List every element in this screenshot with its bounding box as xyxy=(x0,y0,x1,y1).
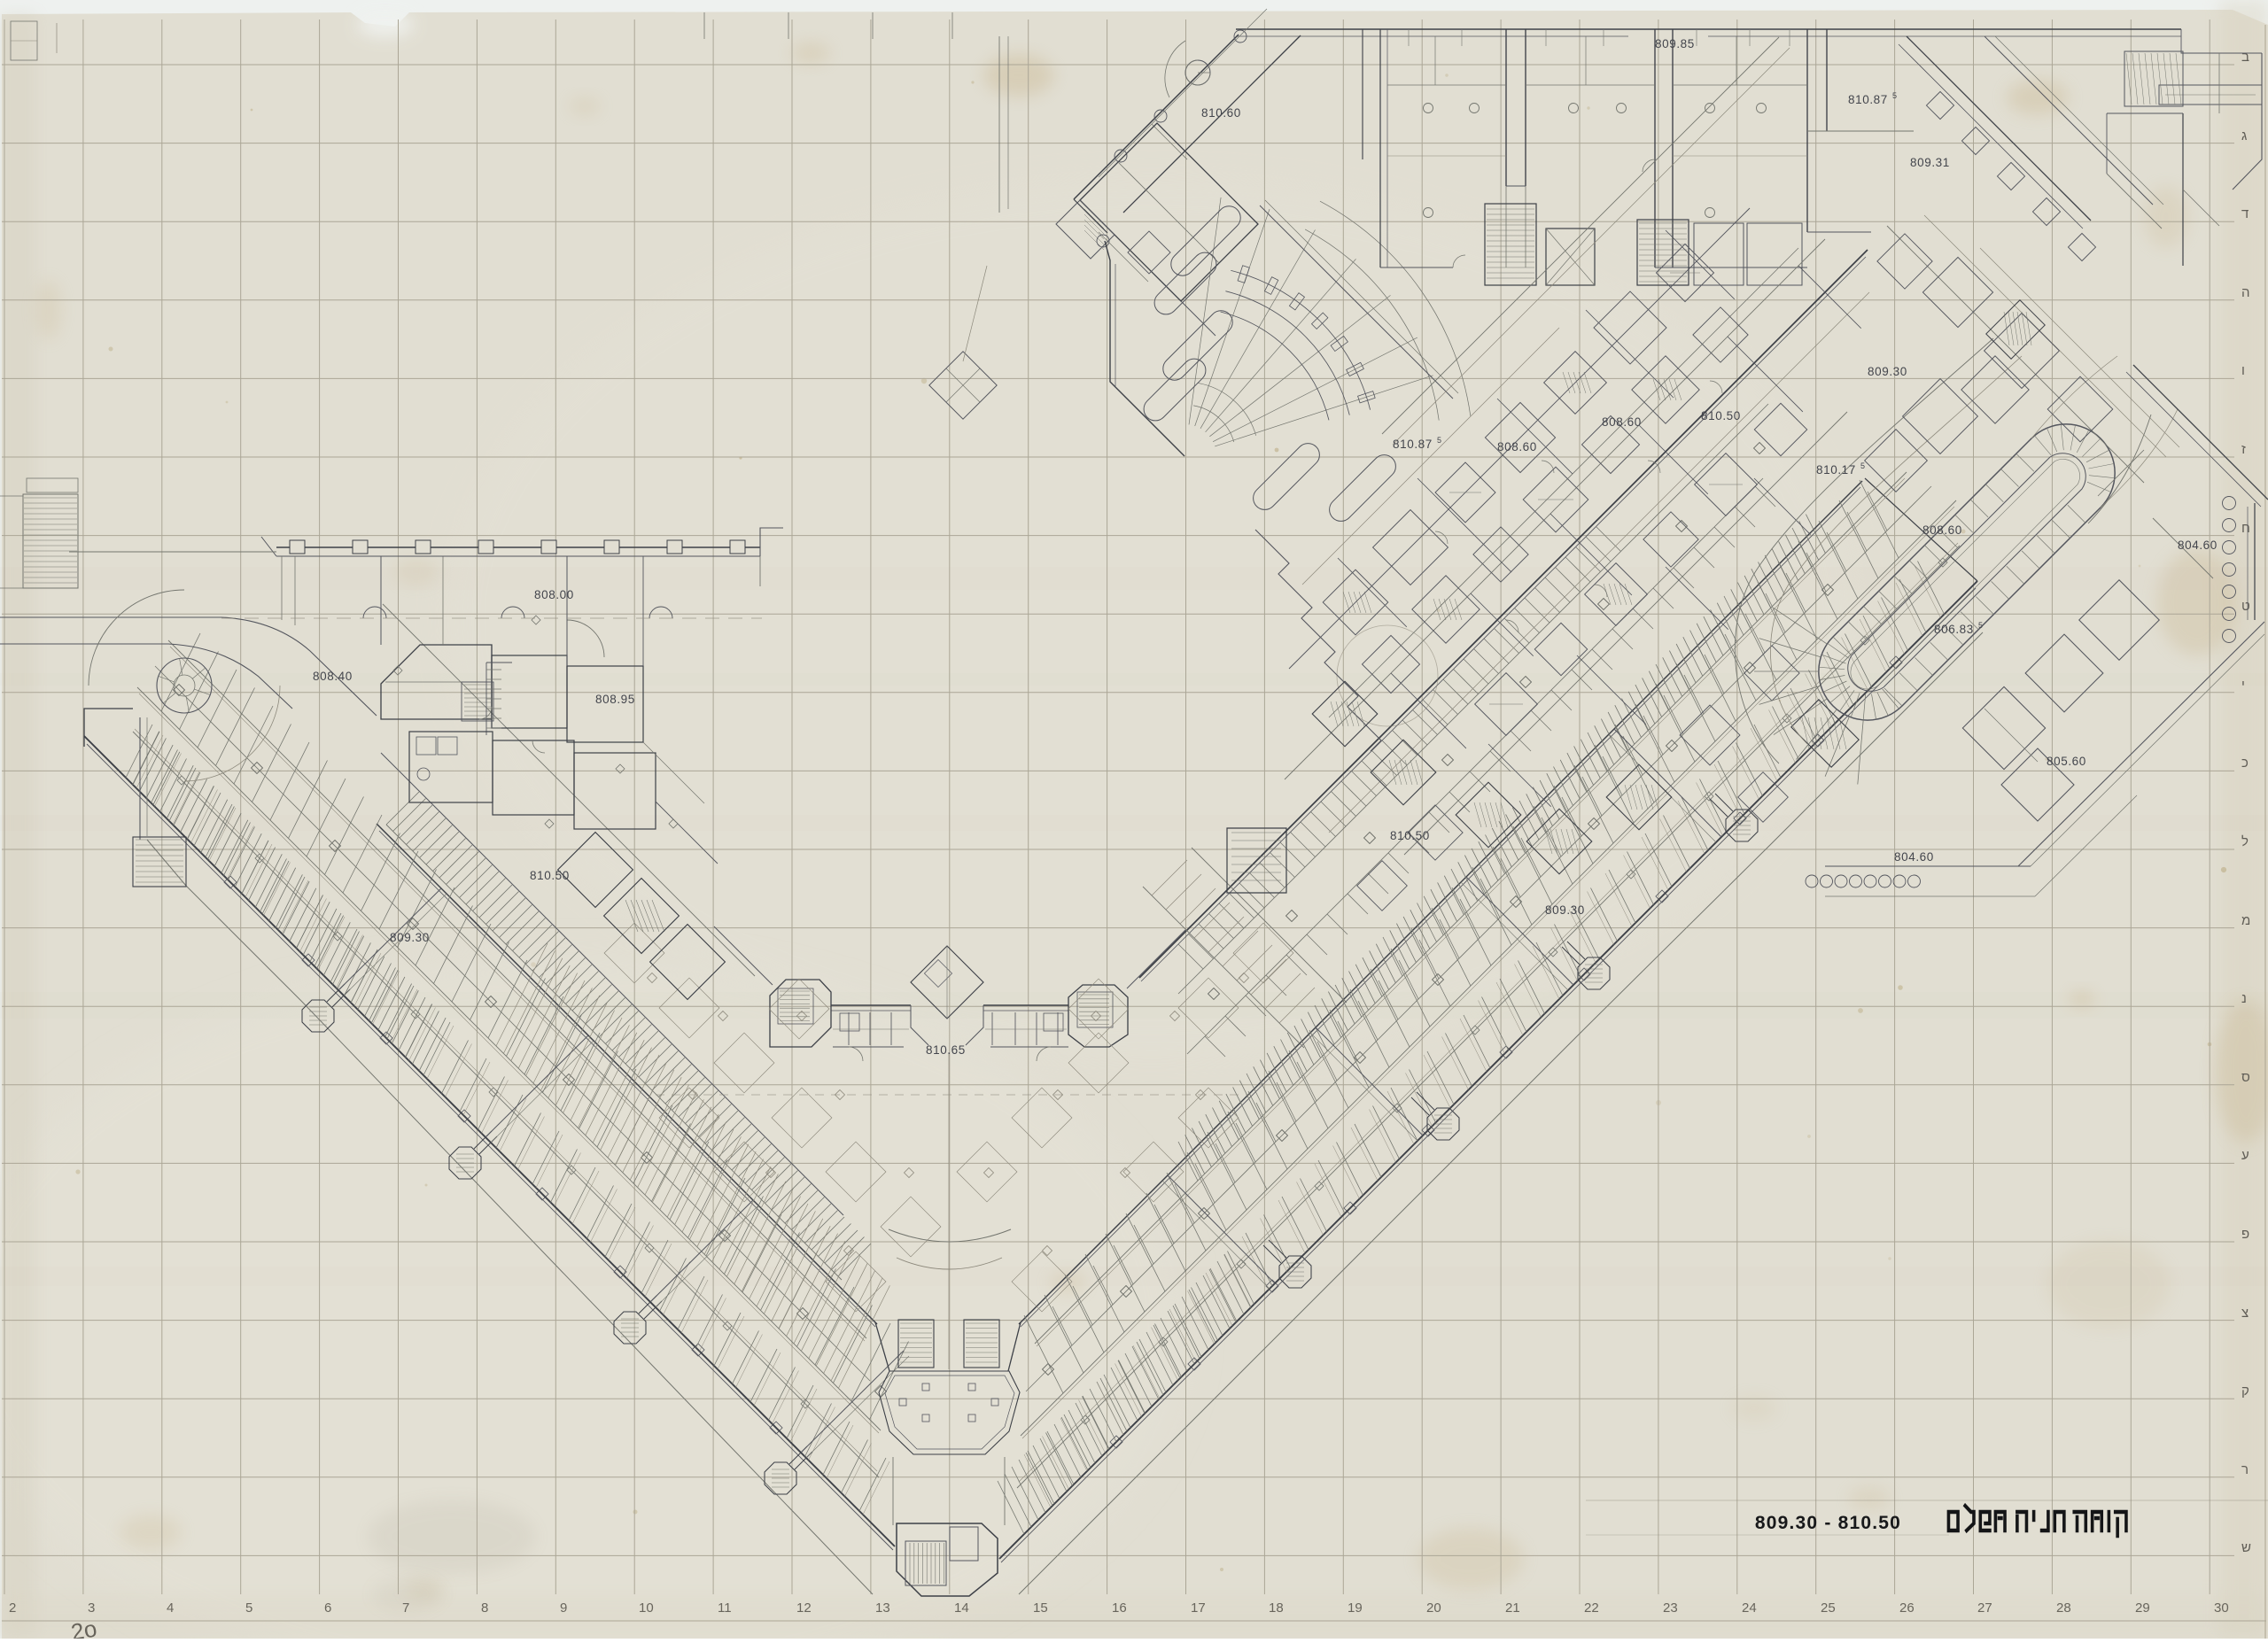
svg-text:ט: ט xyxy=(2241,599,2250,614)
svg-text:30: 30 xyxy=(2214,1600,2229,1616)
svg-text:ק: ק xyxy=(2241,1383,2249,1399)
svg-text:810.87: 810.87 xyxy=(1393,438,1433,451)
svg-text:14: 14 xyxy=(954,1600,969,1616)
svg-text:808.00: 808.00 xyxy=(534,588,574,601)
svg-text:5: 5 xyxy=(1978,621,1983,630)
svg-text:810.50: 810.50 xyxy=(1390,829,1430,842)
svg-text:י: י xyxy=(2241,678,2245,693)
svg-text:פ: פ xyxy=(2241,1227,2249,1242)
svg-text:12: 12 xyxy=(796,1600,812,1616)
svg-text:809.30 - 810.50: 809.30 - 810.50 xyxy=(1755,1513,1901,1533)
svg-text:810.60: 810.60 xyxy=(1201,106,1241,120)
svg-text:809.30: 809.30 xyxy=(1545,903,1585,917)
svg-text:19: 19 xyxy=(1348,1600,1363,1616)
svg-text:ש: ש xyxy=(2241,1540,2251,1555)
svg-text:810.50: 810.50 xyxy=(1701,409,1741,422)
svg-text:808.60: 808.60 xyxy=(1922,523,1962,537)
svg-text:מ: מ xyxy=(2241,913,2250,928)
svg-text:6: 6 xyxy=(324,1600,331,1616)
svg-text:809.30: 809.30 xyxy=(1868,365,1907,378)
svg-text:20: 20 xyxy=(1426,1600,1441,1616)
svg-text:808.60: 808.60 xyxy=(1497,440,1537,453)
svg-text:7: 7 xyxy=(402,1600,409,1616)
svg-text:5: 5 xyxy=(1860,461,1865,470)
svg-text:28: 28 xyxy=(2056,1600,2071,1616)
svg-text:810.50: 810.50 xyxy=(530,869,570,882)
svg-text:צ: צ xyxy=(2241,1306,2249,1321)
svg-text:ז: ז xyxy=(2241,442,2246,457)
svg-text:23: 23 xyxy=(1663,1600,1678,1616)
svg-text:ד: ד xyxy=(2241,206,2249,221)
svg-text:22: 22 xyxy=(1584,1600,1599,1616)
svg-text:809.31: 809.31 xyxy=(1910,156,1950,169)
svg-text:ב: ב xyxy=(2241,50,2249,65)
svg-text:26: 26 xyxy=(1899,1600,1915,1616)
svg-text:16: 16 xyxy=(1112,1600,1127,1616)
svg-text:810.65: 810.65 xyxy=(926,1043,966,1057)
svg-text:24: 24 xyxy=(1742,1600,1757,1616)
svg-text:29: 29 xyxy=(2135,1600,2150,1616)
svg-text:ע: ע xyxy=(2241,1148,2249,1163)
svg-text:נ: נ xyxy=(2241,991,2247,1006)
svg-text:2: 2 xyxy=(9,1600,16,1616)
svg-text:15: 15 xyxy=(1033,1600,1048,1616)
svg-text:ס: ס xyxy=(2241,1070,2250,1085)
svg-text:5: 5 xyxy=(1437,436,1441,445)
svg-text:805.60: 805.60 xyxy=(2047,755,2086,768)
svg-text:3: 3 xyxy=(88,1600,95,1616)
svg-text:808.95: 808.95 xyxy=(595,693,635,706)
svg-text:8: 8 xyxy=(481,1600,488,1616)
svg-text:808.60: 808.60 xyxy=(1602,415,1642,429)
svg-text:25: 25 xyxy=(1821,1600,1836,1616)
svg-text:17: 17 xyxy=(1191,1600,1206,1616)
svg-text:5: 5 xyxy=(245,1600,252,1616)
svg-text:18: 18 xyxy=(1269,1600,1284,1616)
svg-text:5: 5 xyxy=(1892,91,1897,100)
svg-text:ו: ו xyxy=(2241,363,2245,378)
svg-text:809.85: 809.85 xyxy=(1655,37,1695,50)
svg-text:ל: ל xyxy=(2241,834,2249,849)
svg-text:4: 4 xyxy=(167,1600,174,1616)
svg-text:ר: ר xyxy=(2241,1462,2249,1477)
svg-text:ג: ג xyxy=(2241,128,2247,143)
svg-text:כ: כ xyxy=(2241,756,2249,771)
svg-text:806.83: 806.83 xyxy=(1934,623,1974,636)
svg-text:804.60: 804.60 xyxy=(2178,539,2218,552)
svg-text:ח: ח xyxy=(2241,521,2250,536)
svg-text:809.30: 809.30 xyxy=(390,931,430,944)
svg-text:810.87: 810.87 xyxy=(1848,93,1888,106)
svg-text:804.60: 804.60 xyxy=(1894,850,1934,864)
svg-text:11: 11 xyxy=(718,1600,732,1616)
svg-text:9: 9 xyxy=(560,1600,567,1616)
svg-text:810.17: 810.17 xyxy=(1816,463,1856,477)
svg-text:21: 21 xyxy=(1505,1600,1520,1616)
svg-text:13: 13 xyxy=(875,1600,890,1616)
svg-text:10: 10 xyxy=(639,1600,654,1616)
svg-text:27: 27 xyxy=(1977,1600,1992,1616)
svg-text:808.40: 808.40 xyxy=(313,670,353,683)
svg-text:ה: ה xyxy=(2241,285,2250,300)
svg-text:2o: 2o xyxy=(69,1615,99,1639)
